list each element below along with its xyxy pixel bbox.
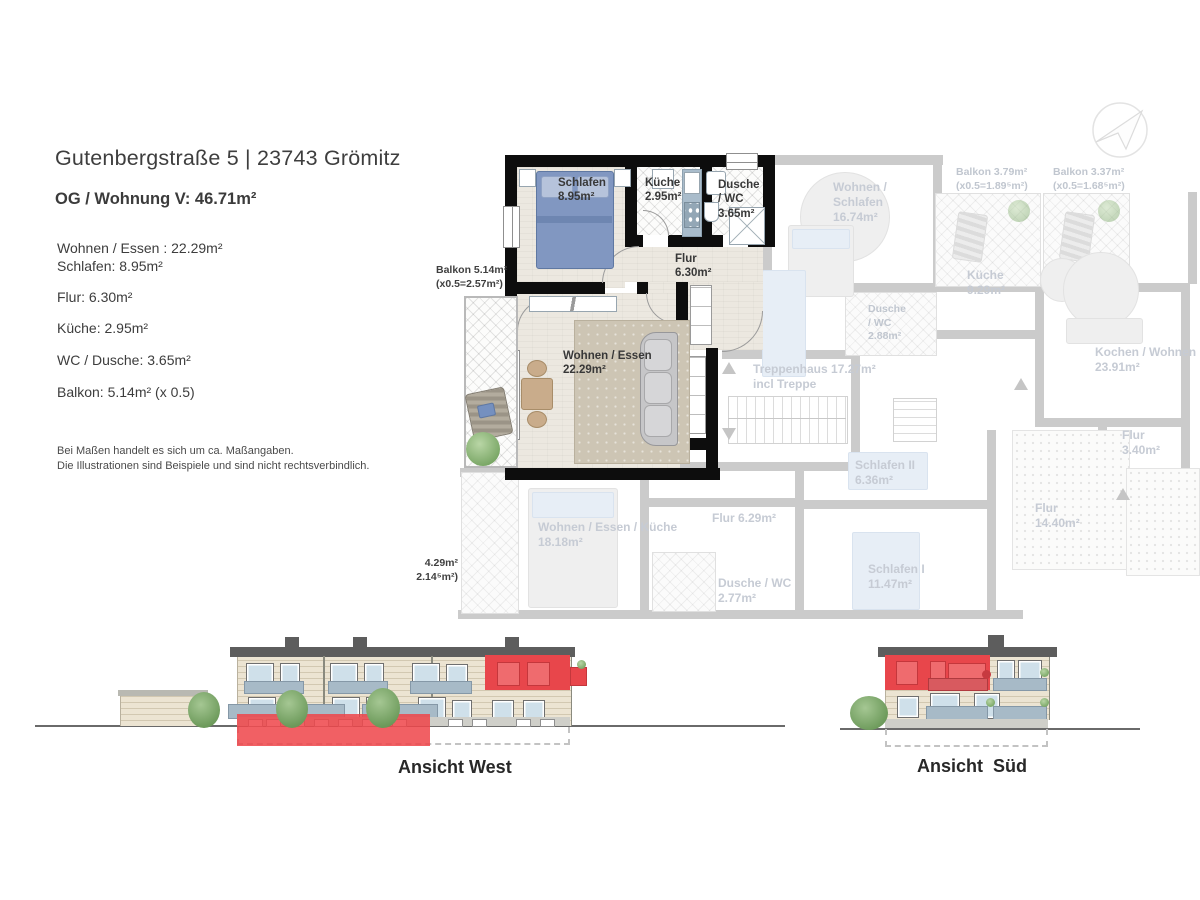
room-label: Flur 14.40m² [1035, 501, 1080, 531]
floorplan-page: Gutenbergstraße 5 | 23743 Grömitz OG / W… [0, 0, 1200, 900]
balcony-side-highlighted [570, 667, 587, 686]
plant [1040, 698, 1049, 707]
wardrobe [690, 285, 712, 345]
page-title: Gutenbergstraße 5 | 23743 Grömitz [55, 146, 401, 171]
pillow [792, 229, 850, 249]
direction-arrow [1014, 378, 1028, 390]
room-label: Schlafen I 11.47m² [868, 562, 925, 592]
room-label: Flur 6.29m² [712, 511, 776, 526]
basement-window [448, 719, 463, 727]
chair [527, 360, 547, 377]
wall-segment [648, 498, 798, 507]
room-label: Wohnen / Essen 22.29m² [563, 349, 652, 378]
rug [1063, 252, 1139, 328]
balcony-railing-highlighted [928, 678, 988, 691]
room-list-item: Wohnen / Essen : 22.29m² [57, 240, 223, 256]
wall-segment [1188, 192, 1197, 284]
window-highlighted [527, 662, 550, 686]
stairs [893, 398, 937, 442]
nightstand [519, 169, 536, 187]
room-label: Flur 6.30m² [675, 252, 711, 281]
basement-window [472, 719, 487, 727]
wall-segment [505, 282, 605, 294]
window [897, 696, 919, 718]
wall-segment [458, 610, 1023, 619]
table [521, 378, 553, 410]
room-label: Schlafen 8.95m² [558, 176, 606, 205]
sofa [1066, 318, 1143, 344]
highlighted-unit-ground-west [237, 714, 430, 746]
room-label: Flur 3.40m² [1122, 428, 1160, 458]
bush [850, 696, 888, 730]
nightstand [614, 169, 631, 187]
wall-segment [987, 430, 996, 616]
terrace-area [1012, 430, 1130, 570]
elevation-caption-west: Ansicht West [398, 757, 512, 778]
balcony-label: Balkon 5.14m² (x0.5=2.57m²) [436, 264, 507, 291]
direction-arrow [722, 362, 736, 374]
plant [1040, 668, 1049, 677]
chimney [505, 637, 519, 647]
room-list-item: Küche: 2.95m² [57, 320, 148, 336]
stairs-divider [728, 418, 846, 419]
chair [527, 411, 547, 428]
room-label: Küche 9.29m² [967, 268, 1005, 298]
wall-segment [505, 468, 720, 480]
room-label: Balkon 3.37m² (x0.5=1.68⁵m²) [1053, 166, 1125, 193]
wall-segment [775, 155, 943, 165]
elevation-caption-sued: Ansicht Süd [917, 756, 1027, 777]
wall-segment [935, 330, 1040, 339]
window [503, 206, 520, 248]
chimney [353, 637, 367, 647]
room-label: Dusche / WC 2.77m² [718, 576, 791, 606]
balcony-area [461, 472, 519, 614]
bush [188, 692, 220, 728]
plant-highlighted [982, 670, 991, 679]
apartment-subtitle: OG / Wohnung V: 46.71m² [55, 190, 256, 209]
stairs [728, 396, 848, 444]
window [726, 153, 758, 170]
room-label: Dusche / WC 3.65m² [718, 178, 760, 221]
blanket-fold [537, 216, 612, 223]
room-label: Wohnen / Essen / Küche 18.18m² [538, 520, 677, 550]
wall-segment [1181, 283, 1190, 478]
disclaimer-text: Bei Maßen handelt es sich um ca. Maßanga… [57, 444, 417, 474]
wall-segment [795, 500, 991, 509]
balcony-railing [993, 706, 1047, 720]
stove [684, 202, 700, 228]
direction-arrow [722, 428, 736, 440]
basement-outline [885, 729, 1048, 747]
room-label: 4.29m² 2.14⁵m²) [406, 557, 458, 584]
window-highlighted [497, 662, 520, 686]
balcony-railing [410, 681, 472, 694]
bed [762, 270, 806, 377]
room-label: Treppenhaus 17.27m² incl Treppe [753, 362, 876, 392]
basement-window [516, 719, 531, 727]
wall-segment [795, 468, 804, 616]
room-label: Dusche / WC 2.88m² [868, 303, 906, 344]
plant [1098, 200, 1120, 222]
room-list-item: Schlafen: 8.95m² [57, 258, 163, 274]
base-strip [885, 719, 1048, 728]
pillow [532, 492, 614, 518]
sideboard [529, 296, 617, 312]
terrace-area [1126, 468, 1200, 576]
bathroom-area [652, 552, 716, 612]
plant [1008, 200, 1030, 222]
wall-segment [1035, 290, 1044, 425]
plant [466, 432, 500, 466]
bush [366, 688, 400, 728]
room-label: Kochen / Wohnen 23.91m² [1095, 345, 1200, 375]
chimney [285, 637, 299, 647]
room-label: Küche 2.95m² [645, 176, 681, 205]
balcony-railing [993, 678, 1047, 691]
toilet [704, 202, 719, 222]
plant [986, 698, 995, 707]
wall-segment [1035, 418, 1185, 427]
sofa-cushion [644, 405, 672, 437]
direction-arrow [1116, 488, 1130, 500]
window-highlighted [896, 661, 918, 685]
wall-segment [706, 348, 718, 468]
plant [577, 660, 586, 669]
room-label: Schlafen II 6.36m² [855, 458, 915, 488]
room-label: Balkon 3.79m² (x0.5=1.89⁵m²) [956, 166, 1028, 193]
balcony-railing [926, 706, 988, 720]
bush [276, 690, 308, 728]
room-list-item: Flur: 6.30m² [57, 289, 132, 305]
north-arrow-icon [1086, 96, 1154, 164]
kitchen-sink [684, 172, 700, 194]
room-list-item: Balkon: 5.14m² (x 0.5) [57, 384, 195, 400]
basement-window [540, 719, 555, 727]
chimney [988, 635, 1004, 648]
room-label: Wohnen / Schlafen 16.74m² [833, 180, 887, 225]
room-list-item: WC / Dusche: 3.65m² [57, 352, 191, 368]
